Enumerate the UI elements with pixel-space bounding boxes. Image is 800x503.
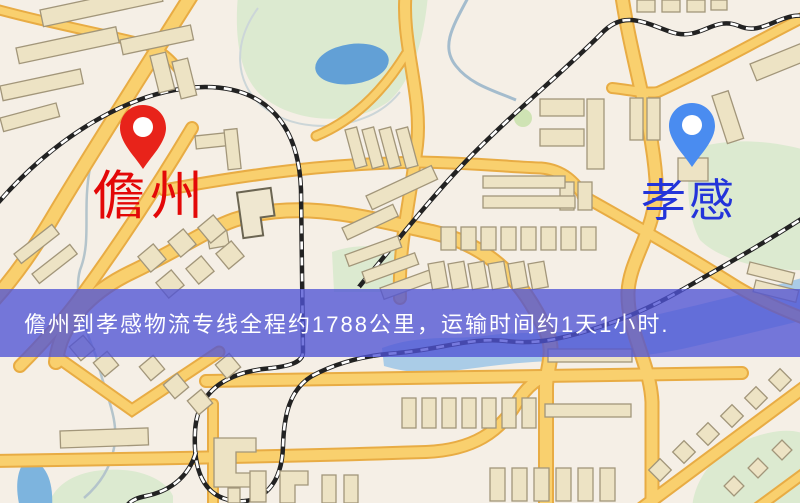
pin-hole	[682, 115, 702, 135]
pin-hole	[133, 117, 153, 137]
map-background	[0, 0, 800, 503]
origin-city-label: 儋州	[92, 171, 208, 224]
origin-pin-icon	[117, 103, 169, 170]
destination-city-label: 孝感	[641, 179, 737, 224]
route-info-banner: 儋州到孝感物流专线全程约1788公里，运输时间约1天1小时.	[0, 289, 800, 357]
destination-pin-icon	[666, 101, 718, 168]
route-info-text: 儋州到孝感物流专线全程约1788公里，运输时间约1天1小时.	[0, 307, 670, 339]
logistics-route-map: 儋州 孝感 儋州到孝感物流专线全程约1788公里，运输时间约1天1小时.	[0, 0, 800, 503]
